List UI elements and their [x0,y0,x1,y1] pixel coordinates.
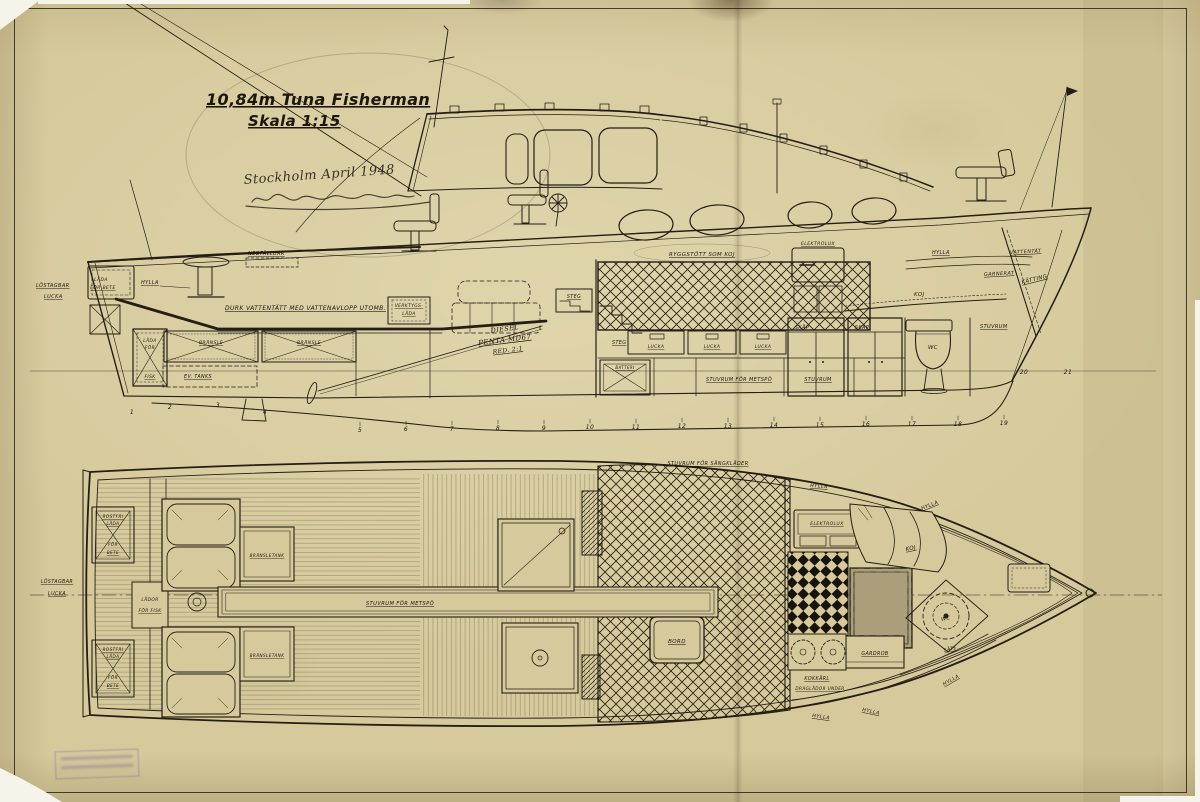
drawing-scale: Skala 1:15 [248,112,341,130]
fridge-plan: ELEKTROLUX [794,510,860,548]
label-lada: LÅDA [402,310,415,317]
label-lucka: LUCKA [704,344,721,350]
label-skap: SKÅP [855,324,870,331]
label-lucka: LUCKA [44,294,63,300]
label-durk: DURK VATTENTÄTT MED VATTENAVLOPP UTOMB. [225,305,386,312]
label-lada: LÅDA [107,654,120,659]
label-elektrolux: ELEKTROLUX [801,241,836,247]
fuel-tank-plan: BRÄNSLETANK [240,627,294,681]
drawing-title: 10,84m Tuna Fisherman [206,90,430,109]
label-lostagbar: LÖSTAGBAR [36,282,70,289]
windshield-pane [506,134,528,184]
deck-hatch [498,519,574,591]
station-numbers: 1 2 3 4 5 6 7 8 9 10 11 12 13 14 15 16 1… [130,369,1072,434]
station-number: 6 [404,426,408,433]
scan-edge [1120,796,1200,802]
fuel-tank: BRÄNSLE [164,331,258,362]
drawing: 10,84m Tuna Fisherman Skala 1:15 Stockho… [0,0,1200,802]
label-elektrolux: ELEKTROLUX [810,521,844,527]
outrigger-pole [136,1,427,177]
label-rostfri: ROSTFRI [103,647,124,652]
station-number: 20 [1020,369,1028,376]
helm-chair [394,194,439,251]
cabinet-skap: SKÅP [848,318,902,396]
label-skap: SKÅP [795,324,810,331]
signature [246,194,430,209]
station-number: 1 [130,409,134,416]
label-hylla: HYLLA [812,713,831,721]
pennant [1067,87,1078,96]
drawer-lucka: LUCKA [688,331,736,354]
scan-edge [1195,300,1200,802]
label-stuvrum-metspo: STUVRUM FÖR METSPÖ [706,376,772,383]
label-for-bete: FÖR BETE [90,284,115,291]
label-bransle: BRÄNSLE [199,339,223,346]
station-number: 12 [678,423,686,430]
handwritten-note: Stockholm April 1948 [243,162,395,188]
bow-hatch [1008,564,1050,592]
label-for: FÖR [108,542,118,547]
station-number: 18 [954,421,962,428]
fuel-tank-plan: BRÄNSLETANK [240,527,294,581]
label-bete: BETE [107,550,119,555]
label-verktygs: VERKTYGS- [395,303,423,309]
station-number: 7 [450,426,454,433]
label-koj: KOJ [914,292,925,298]
folding-seat [246,258,298,267]
cockpit-seat [162,499,240,591]
stern-locker [90,305,120,334]
companionway-steps: STEG [556,289,592,312]
windshield-pane [599,128,657,183]
label-hylla: HYLLA [810,483,828,490]
label-ryggstott: RYGGSTÖTT SOM KOJ [669,251,735,258]
deck-hatch [502,623,578,693]
label-lador: LÅDOR [141,596,158,603]
label-hylla: HYLLA [921,500,940,512]
label-bransle: BRÄNSLE [297,339,321,346]
label-kokkarl: KOKKÄRL [804,675,829,682]
label-wc: WC [928,345,938,351]
archive-stamp [55,749,140,780]
label-steg: STEG [567,294,581,300]
label-batteri: BATTERI [615,365,635,370]
label-bord: BORD [668,639,686,645]
cabin-window [689,204,744,237]
cabin-window [618,209,673,242]
station-number: 11 [632,424,640,431]
profile-view: LÅDA FÖR BETE HYLLA LÖSTAGBAR LUCKA LÅDA… [30,1,1156,434]
cockpit-seat [162,627,240,717]
drawer-lucka: LUCKA [740,331,786,354]
station-number: 17 [908,421,916,428]
label-lucka: LUCKA [755,344,772,350]
stove-burners: KOKKÄRL DRAGLÅDOR UNDER [788,634,846,691]
title-block: 10,84m Tuna Fisherman Skala 1:15 Stockho… [186,53,550,257]
label-for-fisk: FÖR FISK [138,607,162,614]
hatched-sill [582,655,600,699]
windshield-pane [534,130,592,185]
label-lucka: LUCKA [48,591,66,597]
station-number: 21 [1064,369,1072,376]
label-wc: WC [941,615,951,623]
label-for: FÖR [145,344,155,351]
station-number: 4 [263,409,267,416]
rod-storage-channel: STUVRUM FÖR METSPÖ [218,587,718,617]
bow-staff [1052,87,1067,207]
berth-backrest [598,262,870,330]
label-steg: STEG [612,340,626,346]
steering-wheel [549,194,567,226]
toolbox: VERKTYGS- LÅDA [388,297,430,324]
label-gardrob: GARDROB [861,651,888,657]
label-garnerat: GARNERAT [984,270,1015,278]
station-number: 13 [724,423,732,430]
cockpit-sole [116,299,546,329]
label-bransletank: BRÄNSLETANK [250,653,286,658]
foredeck-chair [956,149,1015,201]
label-sate: SÄTE [943,644,958,654]
label-bransletank: BRÄNSLETANK [250,553,286,558]
label-ev-tanks: EV. TANKS [184,374,212,380]
label-hylla: HYLLA [942,674,961,688]
label-draglador: DRAGLÅDOR UNDER [795,686,844,691]
drawer-lucka: LUCKA [628,331,684,354]
label-hylla: HYLLA [862,707,881,717]
label-katting: KÄTTING [1021,273,1048,286]
toilet-plan: WC [906,580,988,652]
label-lada: LÅDA [107,521,120,526]
label-rostfri: ROSTFRI [103,514,124,519]
station-number: 19 [1000,420,1008,427]
checkerboard-floor [788,552,848,636]
label-red: RED. 2:1 [491,345,523,356]
profile-interior: LÅDA FÖR BETE HYLLA LÖSTAGBAR LUCKA LÅDA… [36,228,1048,398]
label-vattentat: VATTENTÄT [1010,247,1042,256]
engine: DIESEL PENTA MD67 RED. 2:1 [452,281,540,356]
toilet: WC [905,318,970,396]
station-number: 9 [542,425,546,432]
label-hylla: HYLLA [141,280,159,286]
label-stuvrum-sangklader: STUVRUM FÖR SÄNGKLÄDER [667,460,748,467]
station-number: 10 [586,424,594,431]
station-number: 16 [862,421,870,428]
station-number: 8 [496,425,500,432]
label-lada: LÅDA [143,337,156,344]
station-number: 14 [770,422,778,429]
fish-box: LÅDA FÖR FISK [133,329,167,386]
berth-koj-plan: KOJ [850,504,946,572]
hatched-sill [582,491,602,555]
scan-edge [38,0,470,4]
label-stuvrum: STUVRUM [980,324,1008,330]
station-number: 3 [216,402,220,409]
label-lostagbar: LÖSTAGBAR [41,578,73,585]
label-penta: PENTA MD67 [477,333,532,348]
label-lada: LÅDA [94,276,108,283]
wardrobe: GARDROB [846,636,904,668]
label-for: FÖR [108,675,118,680]
label-stuvrum: STUVRUM [804,377,832,383]
fuel-tank: BRÄNSLE [262,331,356,362]
label-fisk: FISK [144,374,156,380]
blueprint-sheet: 10,84m Tuna Fisherman Skala 1:15 Stockho… [0,0,1200,802]
label-nedfallbar: NEDFÄLLBAR [248,250,285,257]
plan-view: ROSTFRI LÅDA FÖR BETE ROSTFRI LÅDA FÖR B… [30,460,1162,726]
label-bete: BETE [107,683,119,688]
table-bord: BORD [650,617,704,663]
label-lucka: LUCKA [648,344,665,350]
station-number: 5 [358,427,362,434]
label-hylla: HYLLA [932,250,950,256]
station-number: 2 [168,404,172,411]
label-stuvrum-metspo: STUVRUM FÖR METSPÖ [366,600,434,607]
station-number: 15 [816,422,824,429]
battery-box: BATTERI [600,360,650,395]
